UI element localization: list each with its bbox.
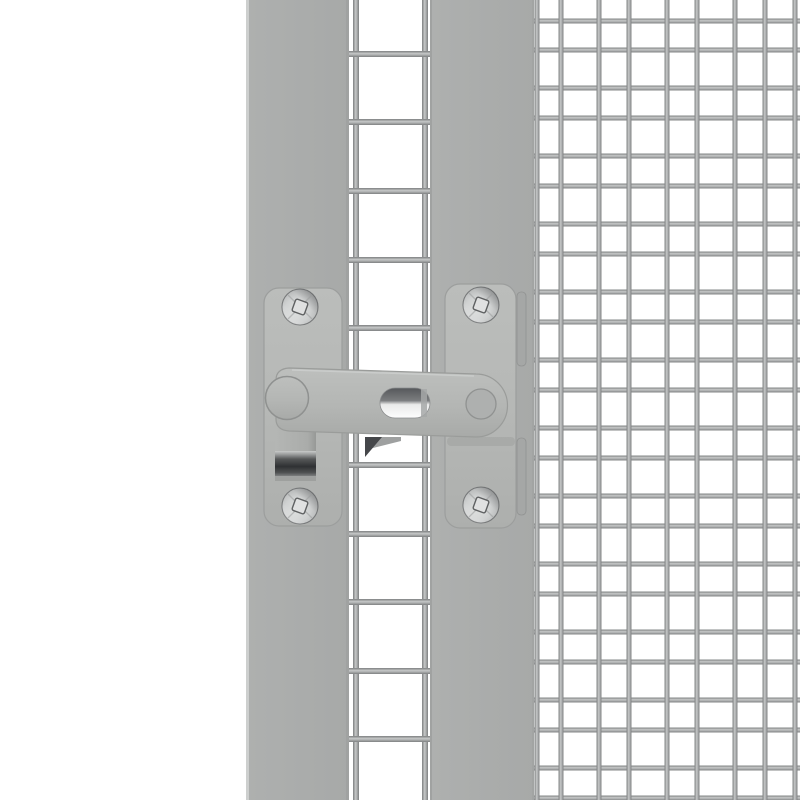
cage-mesh-wire	[665, 0, 670, 800]
strike-bracket-lower-tab	[517, 438, 526, 515]
screw-head	[282, 488, 318, 524]
door-strip-wire	[348, 51, 432, 57]
door-strip-wire	[348, 325, 432, 331]
door-strip-wire	[348, 668, 432, 674]
screw-head	[282, 289, 318, 325]
strike-bracket-upper-tab	[517, 292, 526, 366]
frame-post-right-edge	[532, 0, 534, 800]
door-strip-wire	[348, 736, 432, 742]
cage-mesh-wire	[535, 0, 540, 800]
door-post-highlight-edge	[246, 0, 249, 800]
door-strip-wire	[348, 462, 432, 468]
door-strip-wire	[348, 119, 432, 125]
door-strip-wire	[348, 531, 432, 537]
arm-pivot-boss	[266, 377, 309, 420]
door-strip-wire	[348, 599, 432, 605]
wire-visible-through-slot	[421, 389, 427, 417]
cage-mesh-wire	[763, 0, 768, 800]
cage-mesh-wire	[627, 0, 632, 800]
hook-drop-shadow	[275, 476, 316, 481]
arm-rivet	[466, 389, 496, 419]
cage-mesh-wire	[695, 0, 700, 800]
door-strip-wire	[348, 188, 432, 194]
cage-mesh-wire	[793, 0, 798, 800]
latch-photo-canvas: Galvanised grey gate latch on wire mesh …	[0, 0, 800, 800]
door-strip-wire	[348, 257, 432, 263]
screw-head	[463, 487, 499, 523]
arm-shadow-on-plate	[447, 437, 515, 446]
cage-mesh-wire	[597, 0, 602, 800]
latch-arm	[266, 368, 508, 437]
drop-bar-hook	[275, 451, 316, 476]
cage-mesh-wire	[733, 0, 738, 800]
screw-head	[463, 287, 499, 323]
cage-mesh-wire	[559, 0, 564, 800]
product-photo: Galvanised grey gate latch on wire mesh …	[0, 0, 800, 800]
